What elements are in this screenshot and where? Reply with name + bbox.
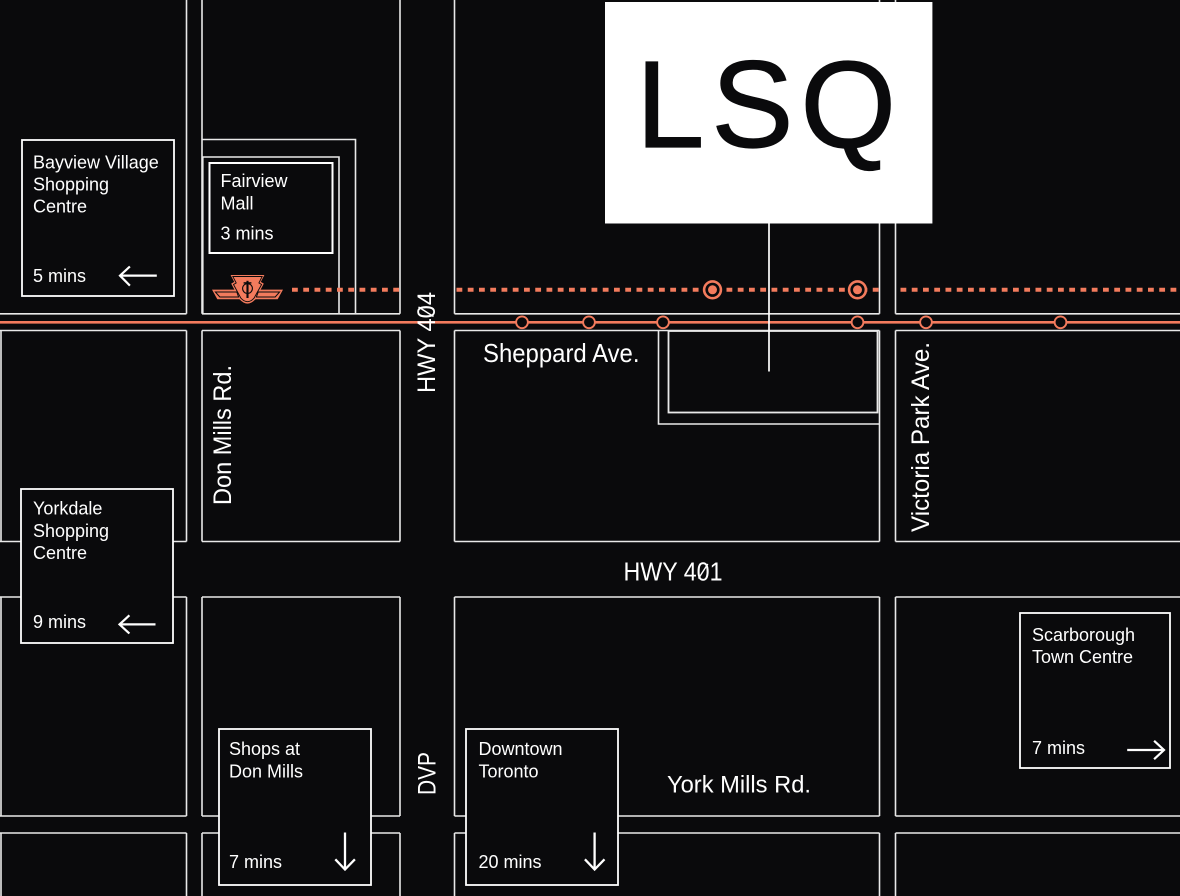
svg-text:Victoria Park Ave.: Victoria Park Ave. <box>907 342 935 532</box>
svg-text:Don Mills: Don Mills <box>229 762 303 782</box>
svg-text:Mall: Mall <box>221 193 254 213</box>
svg-text:Sheppard Ave.: Sheppard Ave. <box>483 338 640 368</box>
svg-text:Shopping: Shopping <box>33 521 109 541</box>
svg-text:DVP: DVP <box>414 752 442 795</box>
svg-text:9 mins: 9 mins <box>33 612 86 632</box>
svg-text:HWY 404: HWY 404 <box>413 292 441 393</box>
svg-text:Toronto: Toronto <box>479 762 539 782</box>
svg-text:Yorkdale: Yorkdale <box>33 499 102 519</box>
svg-text:3 mins: 3 mins <box>221 223 274 243</box>
svg-text:20 mins: 20 mins <box>479 852 542 872</box>
svg-text:LSQ: LSQ <box>636 37 896 174</box>
svg-text:HWY 401: HWY 401 <box>624 556 723 586</box>
svg-text:Downtown: Downtown <box>479 739 563 759</box>
svg-text:Fairview: Fairview <box>221 171 289 191</box>
svg-text:7 mins: 7 mins <box>229 852 282 872</box>
svg-text:Scarborough: Scarborough <box>1032 625 1135 645</box>
svg-text:Town Centre: Town Centre <box>1032 647 1133 667</box>
svg-text:5 mins: 5 mins <box>33 266 86 286</box>
svg-text:Centre: Centre <box>33 197 87 217</box>
svg-text:Shopping: Shopping <box>33 175 109 195</box>
svg-text:Shops at: Shops at <box>229 739 300 759</box>
svg-text:Bayview Village: Bayview Village <box>33 153 159 173</box>
svg-text:7 mins: 7 mins <box>1032 738 1085 758</box>
svg-text:Don Mills Rd.: Don Mills Rd. <box>209 365 237 505</box>
svg-text:York Mills Rd.: York Mills Rd. <box>667 772 811 799</box>
svg-text:Centre: Centre <box>33 543 87 563</box>
